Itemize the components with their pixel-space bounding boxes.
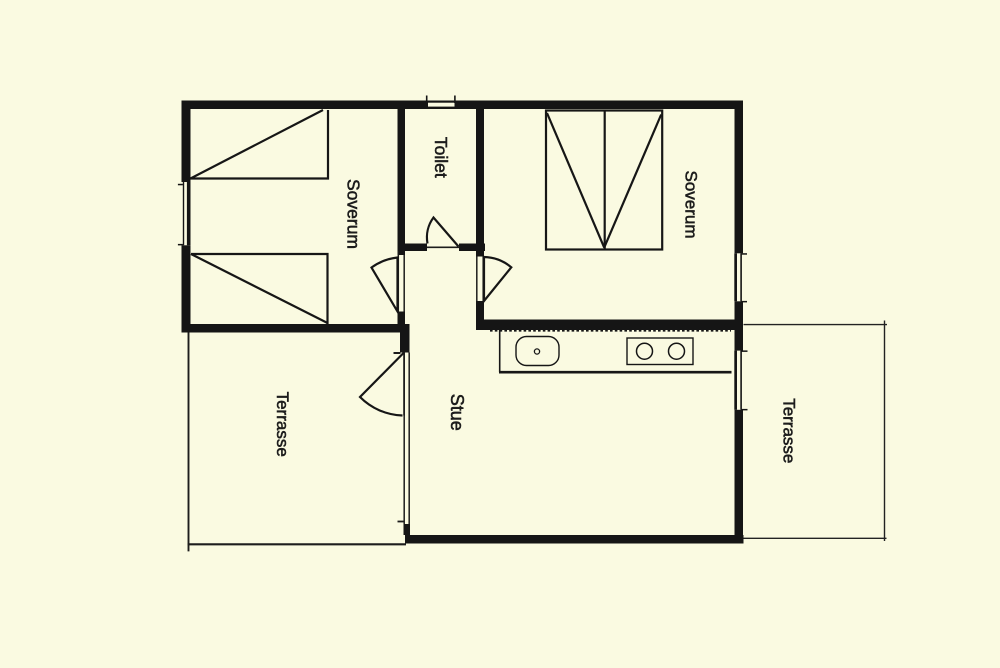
svg-text:Soverum: Soverum — [681, 170, 700, 238]
svg-text:Terrasse: Terrasse — [273, 392, 292, 457]
svg-text:Toilet: Toilet — [431, 137, 451, 178]
svg-text:Soverum: Soverum — [344, 179, 364, 249]
svg-text:Stue: Stue — [447, 394, 467, 431]
svg-text:Terrasse: Terrasse — [780, 398, 799, 463]
